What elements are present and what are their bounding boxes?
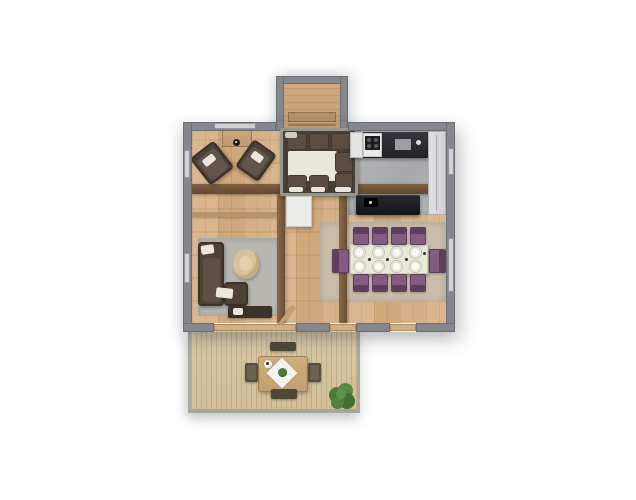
table-item bbox=[405, 258, 408, 261]
plate bbox=[410, 247, 421, 258]
dining-chair bbox=[372, 227, 388, 245]
nook-pillow bbox=[289, 187, 303, 192]
media-bench bbox=[228, 306, 272, 318]
hall-cabinet bbox=[286, 196, 312, 227]
outdoor-bench-top bbox=[270, 342, 296, 351]
armchair-pillow bbox=[250, 150, 264, 163]
window-top bbox=[214, 123, 256, 129]
dining-chair bbox=[410, 274, 426, 292]
deck-door-threshold bbox=[330, 324, 356, 331]
dining-chair bbox=[391, 274, 407, 292]
fridge bbox=[350, 132, 363, 158]
deck-door-threshold bbox=[214, 324, 296, 331]
kitchen-island bbox=[356, 195, 420, 215]
outdoor-table bbox=[258, 356, 308, 392]
chair-seat bbox=[310, 365, 319, 380]
burner bbox=[367, 138, 371, 142]
dining-chair bbox=[410, 227, 426, 245]
kitchen-counter bbox=[350, 132, 428, 158]
dining-chair bbox=[353, 227, 369, 245]
dining-chair bbox=[353, 274, 369, 292]
armchair-pillow bbox=[202, 153, 217, 167]
table-plant-centerpiece bbox=[278, 368, 287, 377]
nook-pillow bbox=[285, 132, 297, 138]
stove bbox=[363, 133, 382, 157]
sofa-pillow bbox=[216, 287, 234, 299]
swivel-chair bbox=[233, 249, 259, 279]
cabin-interior bbox=[183, 122, 455, 332]
dining-chair bbox=[372, 274, 388, 292]
plate bbox=[264, 360, 272, 368]
chair-seat bbox=[247, 365, 256, 380]
nook-cushion bbox=[309, 133, 329, 150]
plate bbox=[391, 247, 402, 258]
burner bbox=[374, 138, 378, 142]
outdoor-chair-left bbox=[245, 363, 258, 382]
console-decor-highlight bbox=[235, 141, 237, 143]
corner-sofa-arm bbox=[224, 282, 248, 306]
tall-cabinet bbox=[428, 131, 446, 215]
porch-wall-top bbox=[276, 76, 348, 84]
wall-bottom-segment bbox=[183, 323, 214, 332]
window-right-lower bbox=[448, 238, 454, 292]
table-item bbox=[368, 258, 371, 261]
plate bbox=[354, 261, 365, 272]
wall-bottom-segment bbox=[296, 323, 330, 332]
plate bbox=[373, 247, 384, 258]
swivel-chair-seat bbox=[239, 256, 252, 271]
dining-end-chair-right bbox=[429, 249, 446, 273]
table-item bbox=[386, 258, 389, 261]
island-faucet bbox=[364, 198, 378, 207]
cabinet-divider bbox=[436, 135, 437, 211]
burner bbox=[367, 144, 371, 148]
dining-end-chair-left bbox=[332, 249, 349, 273]
deck-door-threshold bbox=[390, 324, 416, 331]
plate bbox=[391, 261, 402, 272]
porch-bench bbox=[288, 112, 336, 122]
nook-pillow bbox=[335, 187, 351, 192]
console-decor bbox=[233, 139, 240, 146]
table-item bbox=[423, 252, 426, 255]
potted-plant bbox=[327, 381, 357, 411]
nook-pillow bbox=[311, 187, 325, 192]
plate bbox=[410, 261, 421, 272]
burner bbox=[374, 144, 378, 148]
dining-chair bbox=[391, 227, 407, 245]
beam-post-left bbox=[277, 194, 285, 323]
window-right-upper bbox=[448, 148, 454, 175]
kitchen-sink bbox=[395, 139, 411, 150]
wall-top-right bbox=[348, 122, 455, 131]
window-left-lower bbox=[184, 253, 190, 283]
plate bbox=[354, 247, 365, 258]
cup bbox=[287, 375, 291, 379]
sofa-pillow bbox=[200, 244, 214, 255]
plant-foliage bbox=[336, 389, 346, 399]
media-bench-item bbox=[233, 308, 243, 315]
cooktop bbox=[365, 136, 380, 150]
plate-item bbox=[266, 362, 269, 365]
ceiling-beam-light bbox=[192, 212, 278, 217]
outdoor-chair-right bbox=[308, 363, 321, 382]
lounge-nook bbox=[280, 128, 358, 196]
window-left-upper bbox=[184, 150, 190, 178]
plate bbox=[373, 261, 384, 272]
wall-bottom-segment bbox=[416, 323, 455, 332]
outdoor-bench-bottom bbox=[271, 389, 297, 399]
counter-item bbox=[416, 140, 421, 145]
wall-bottom-segment bbox=[356, 323, 390, 332]
floorplan-scene bbox=[0, 0, 636, 500]
deck bbox=[188, 331, 360, 413]
faucet-highlight bbox=[369, 201, 372, 204]
